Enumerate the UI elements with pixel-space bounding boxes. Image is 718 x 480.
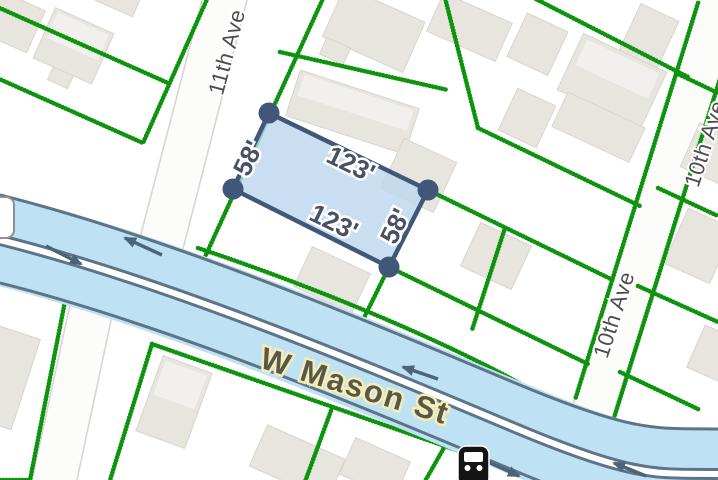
bus-stop-icon[interactable] (458, 446, 489, 480)
parcel-vertex-handle[interactable] (259, 103, 280, 124)
lot-line (620, 372, 700, 410)
route-shield-icon (0, 197, 14, 238)
parcel-vertex-handle[interactable] (223, 179, 244, 200)
lot-line (420, 446, 445, 480)
building (0, 326, 40, 430)
map-viewport[interactable]: 123' 123' 58' 58' 11th Ave 10th Ave 10th… (0, 0, 718, 480)
parcel-vertex-handle[interactable] (379, 257, 400, 278)
parcel-vertex-handle[interactable] (418, 180, 439, 201)
building (0, 0, 154, 101)
map-canvas[interactable]: 123' 123' 58' 58' 11th Ave 10th Ave 10th… (0, 0, 718, 480)
